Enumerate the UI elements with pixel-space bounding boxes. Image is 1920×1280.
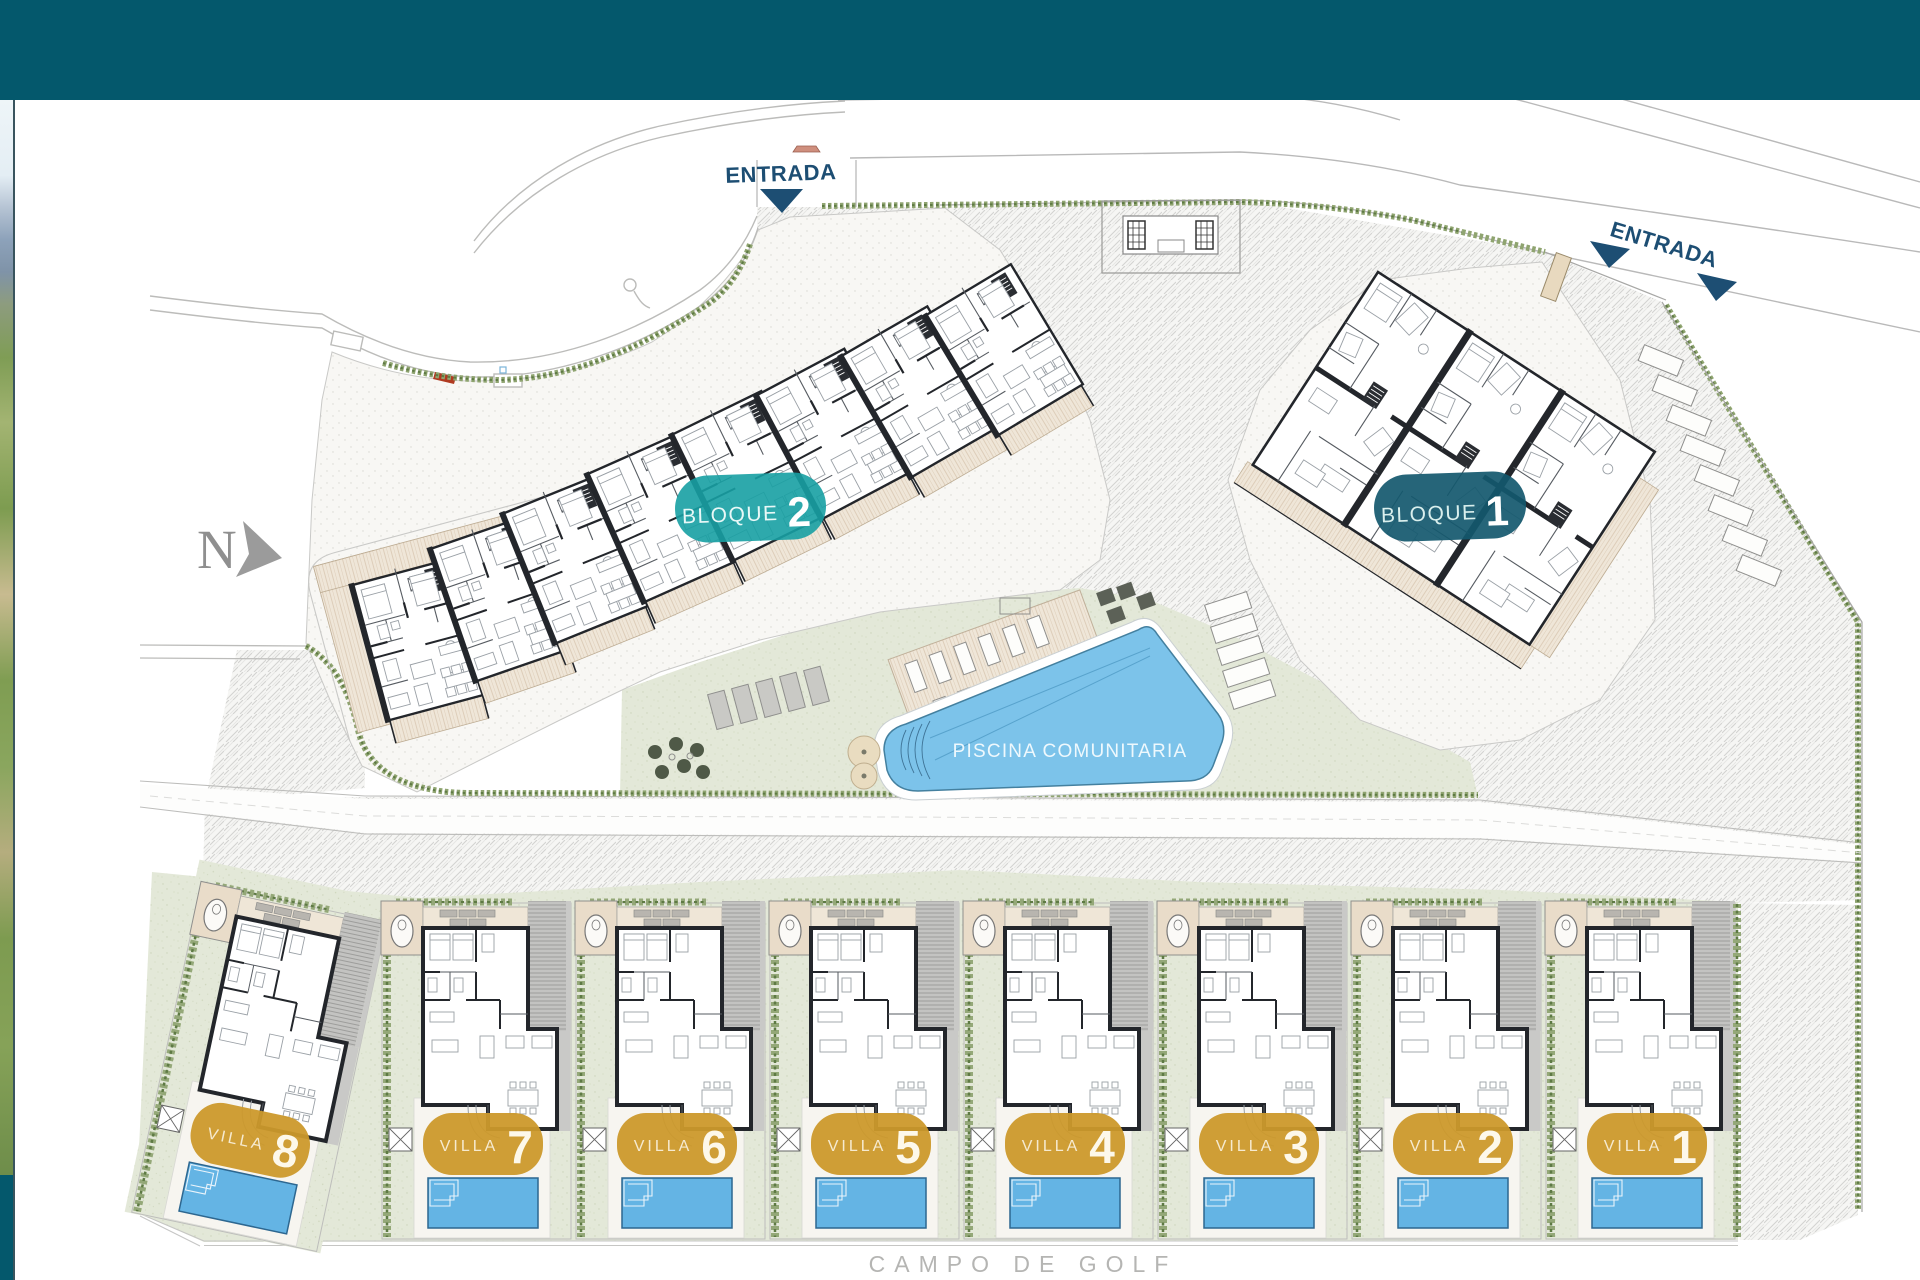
svg-text:N: N	[197, 519, 237, 580]
svg-text:VILLA: VILLA	[1604, 1138, 1663, 1155]
svg-text:1: 1	[1671, 1121, 1697, 1173]
svg-text:BLOQUE: BLOQUE	[1381, 501, 1478, 527]
svg-text:BLOQUE: BLOQUE	[682, 502, 779, 528]
svg-text:3: 3	[1283, 1121, 1309, 1173]
svg-text:2: 2	[1477, 1121, 1503, 1173]
svg-text:6: 6	[701, 1121, 727, 1173]
svg-text:VILLA: VILLA	[1216, 1138, 1275, 1155]
svg-text:5: 5	[895, 1121, 921, 1173]
svg-text:1: 1	[1485, 487, 1510, 535]
svg-text:PISCINA COMUNITARIA: PISCINA COMUNITARIA	[953, 741, 1188, 762]
svg-text:4: 4	[1089, 1121, 1115, 1173]
svg-text:2: 2	[787, 488, 812, 536]
svg-text:ENTRADA: ENTRADA	[725, 159, 837, 188]
svg-text:VILLA: VILLA	[1022, 1138, 1081, 1155]
svg-text:VILLA: VILLA	[440, 1138, 499, 1155]
svg-text:7: 7	[507, 1121, 533, 1173]
svg-text:VILLA: VILLA	[634, 1138, 693, 1155]
svg-text:VILLA: VILLA	[828, 1138, 887, 1155]
svg-text:VILLA: VILLA	[1410, 1138, 1469, 1155]
svg-text:CAMPO DE GOLF: CAMPO DE GOLF	[869, 1251, 1178, 1277]
